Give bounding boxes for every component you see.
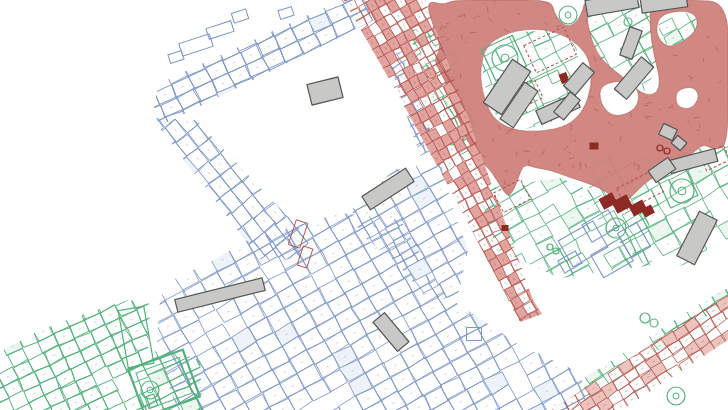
- dark-red-spot: [502, 226, 508, 231]
- site-plan-svg: [0, 0, 728, 410]
- dark-red-spot: [590, 143, 598, 149]
- site-plan-canvas: [0, 0, 728, 410]
